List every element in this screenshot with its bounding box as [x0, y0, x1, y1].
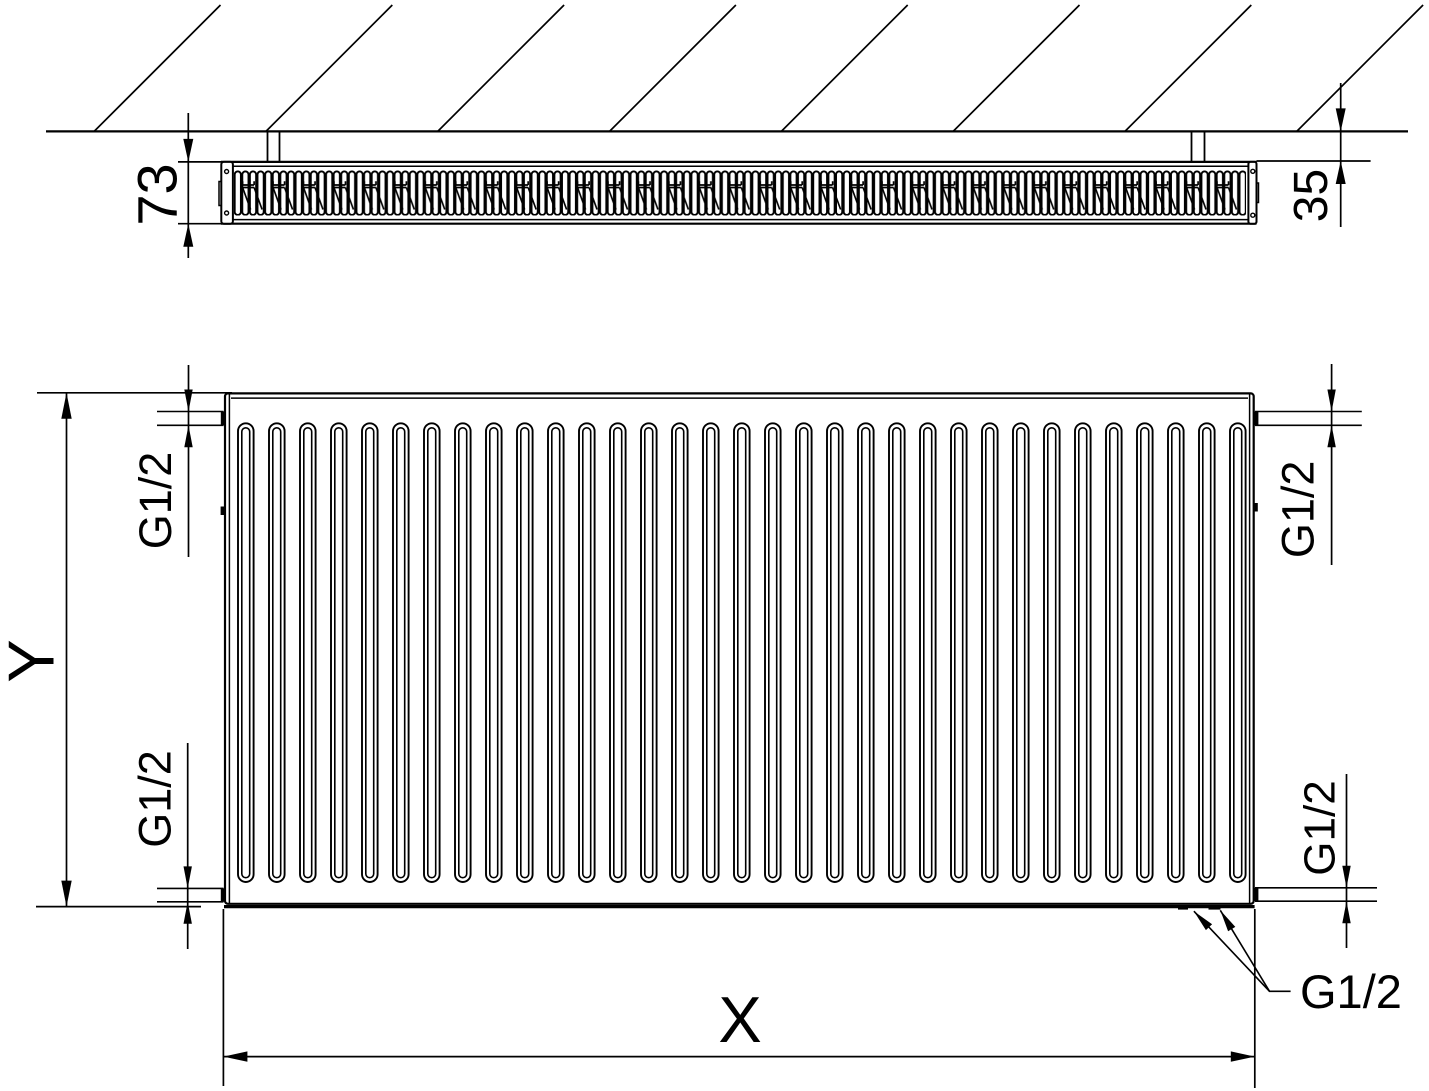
svg-text:73: 73 [126, 163, 189, 225]
svg-text:35: 35 [1285, 169, 1338, 222]
svg-text:G1/2: G1/2 [1300, 965, 1402, 1018]
svg-text:G1/2: G1/2 [130, 452, 181, 550]
svg-text:G1/2: G1/2 [1273, 461, 1324, 559]
svg-text:G1/2: G1/2 [130, 750, 181, 848]
svg-text:X: X [718, 983, 761, 1056]
svg-text:G1/2: G1/2 [1295, 780, 1344, 875]
svg-text:Y: Y [0, 639, 68, 682]
